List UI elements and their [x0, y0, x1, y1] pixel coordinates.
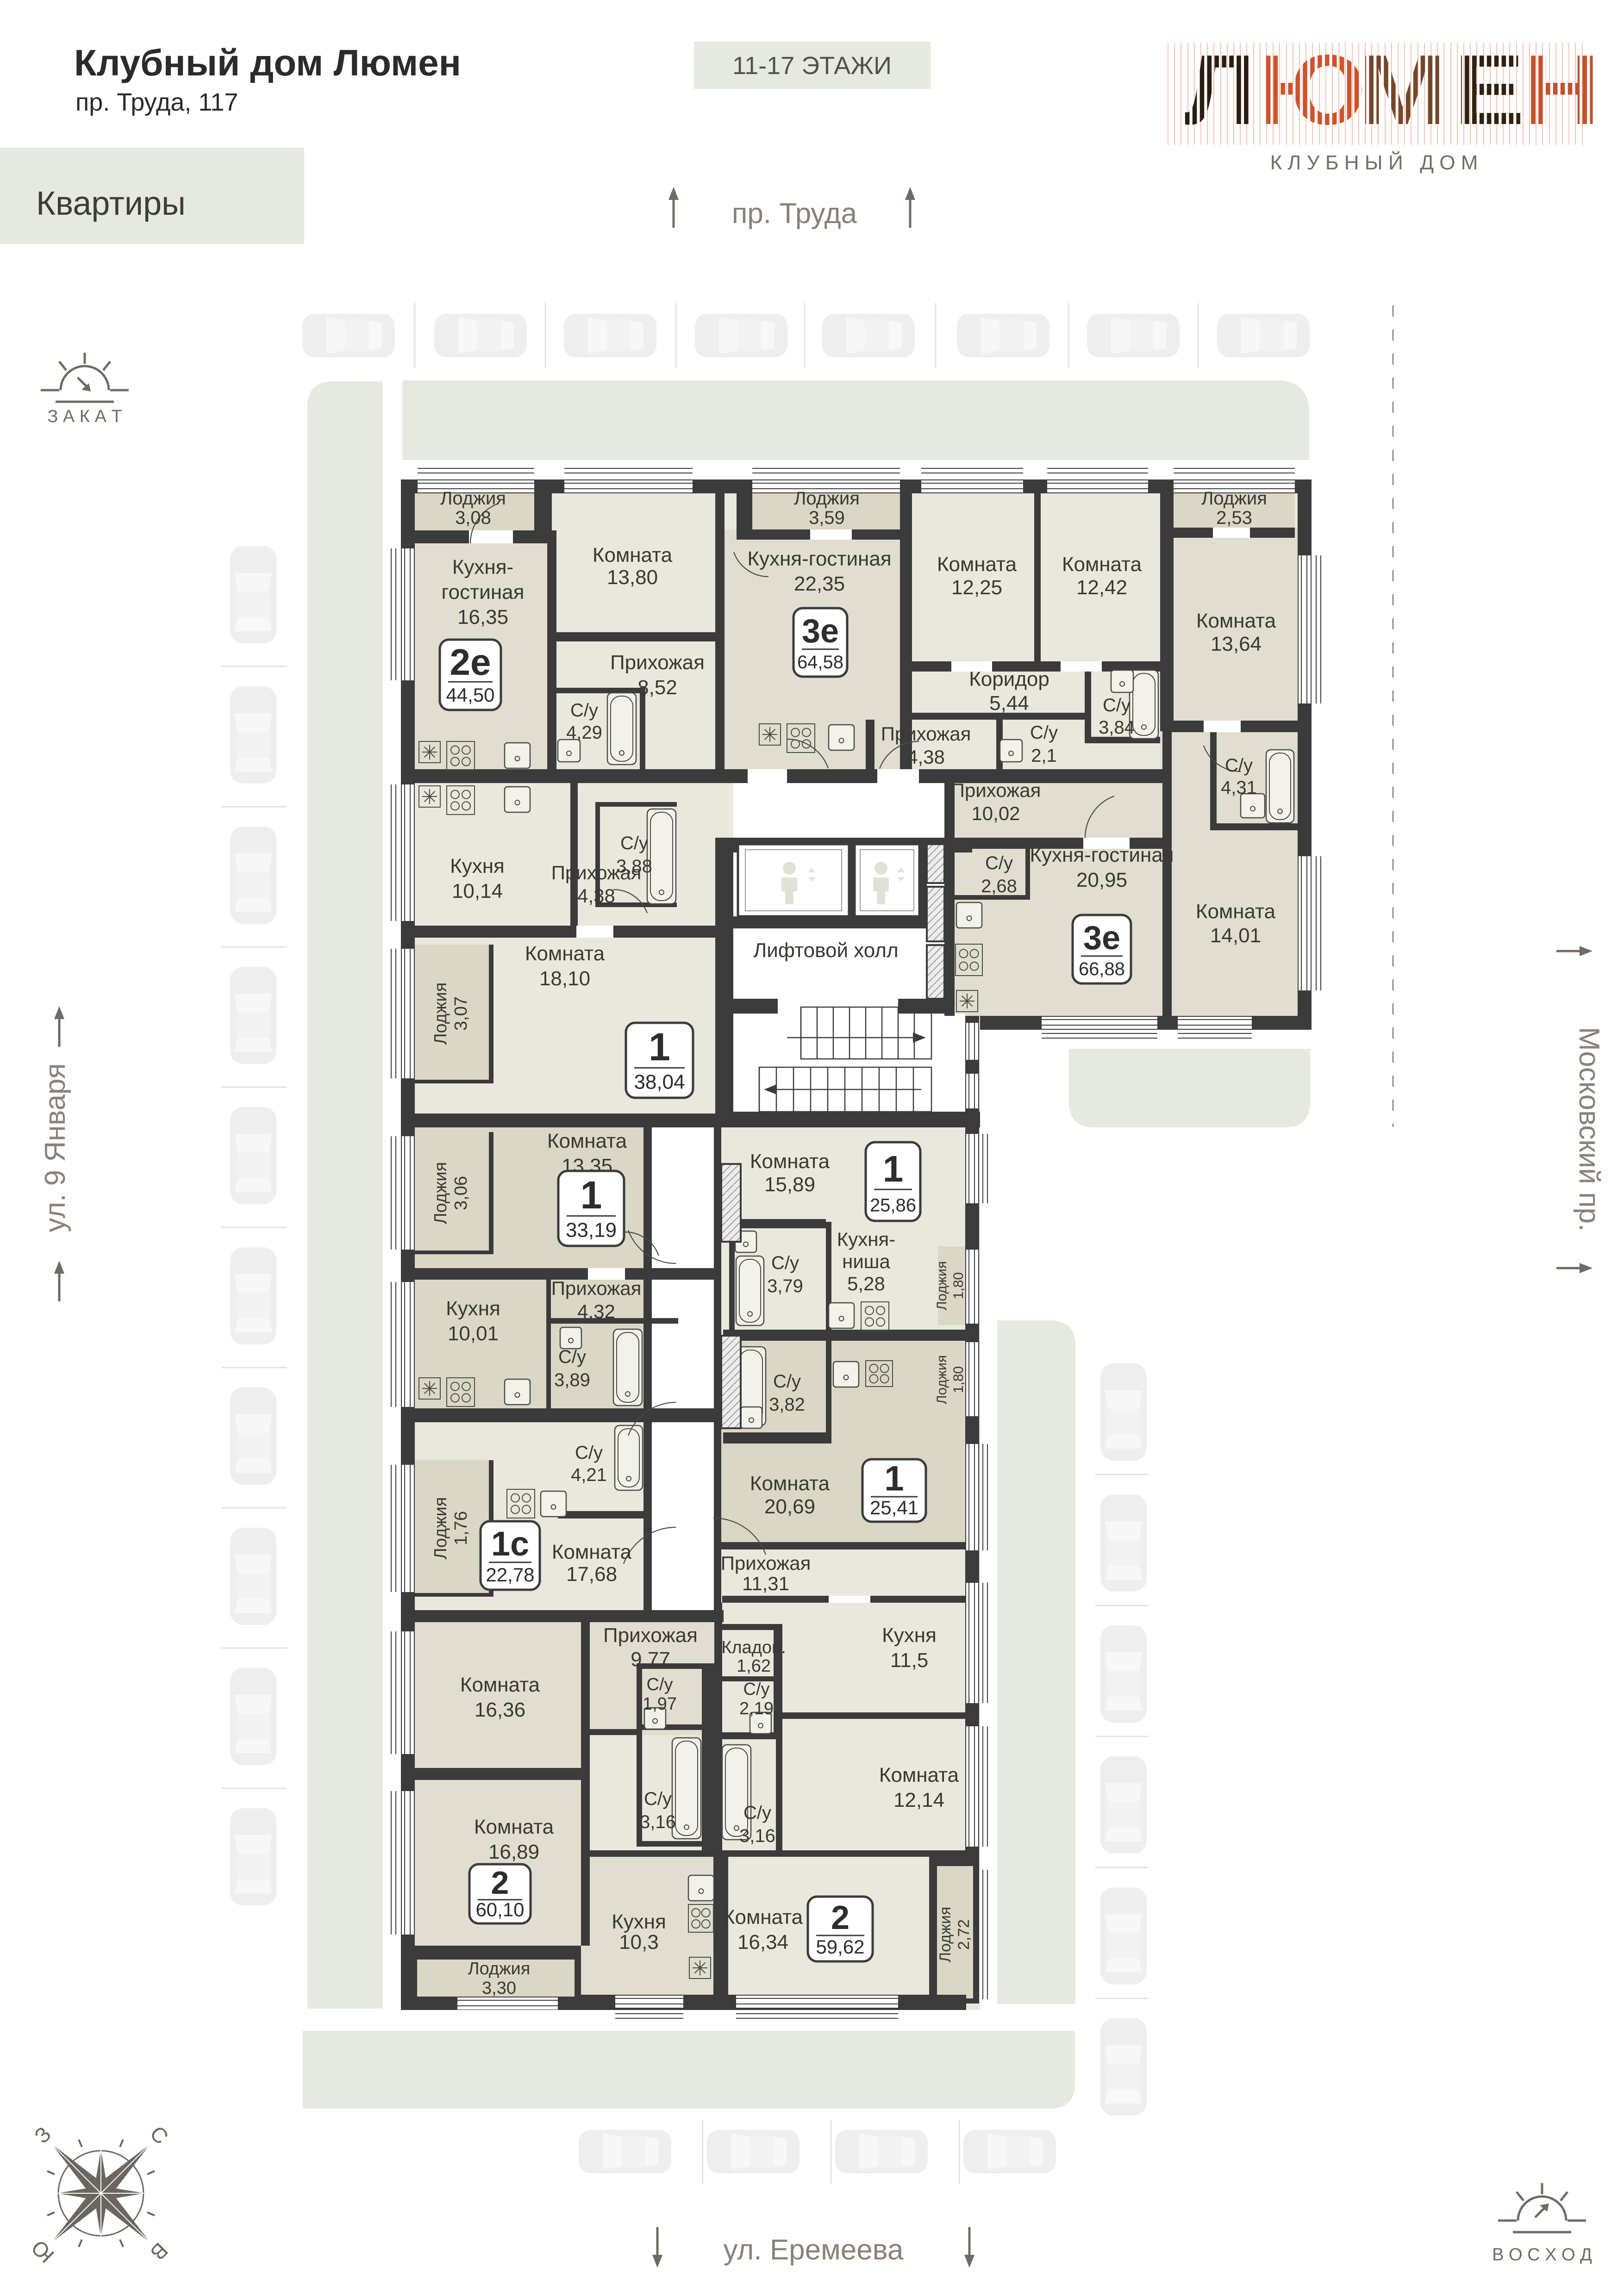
svg-text:33,19: 33,19: [566, 1219, 617, 1242]
svg-text:1: 1: [581, 1173, 602, 1217]
svg-text:8,52: 8,52: [637, 676, 677, 699]
svg-text:11,31: 11,31: [742, 1573, 789, 1594]
svg-text:1: 1: [884, 1459, 904, 1499]
svg-text:В О С Х О Д: В О С Х О Д: [1492, 2245, 1592, 2265]
svg-text:12,42: 12,42: [1076, 576, 1127, 599]
svg-text:Коридор: Коридор: [969, 668, 1049, 691]
svg-text:4,32: 4,32: [577, 1300, 615, 1322]
svg-text:Комната: Комната: [723, 1906, 803, 1929]
svg-text:3,79: 3,79: [767, 1276, 803, 1296]
svg-text:Комната: Комната: [750, 1150, 830, 1173]
svg-text:Комната: Комната: [879, 1764, 959, 1786]
svg-text:2,19: 2,19: [739, 1699, 774, 1718]
svg-text:12,14: 12,14: [893, 1789, 944, 1811]
svg-text:Лоджия: Лоджия: [431, 1162, 450, 1225]
svg-text:С/у: С/у: [1103, 695, 1131, 716]
svg-text:Л: Л: [1184, 34, 1258, 145]
svg-text:18,10: 18,10: [539, 967, 590, 990]
svg-text:Кухня: Кухня: [450, 855, 505, 877]
svg-text:Лоджия: Лоджия: [468, 1959, 531, 1979]
svg-text:1,62: 1,62: [737, 1656, 771, 1676]
svg-text:16,35: 16,35: [457, 606, 508, 628]
svg-text:2е: 2е: [450, 641, 491, 683]
svg-text:3,08: 3,08: [455, 508, 491, 528]
svg-text:С/у: С/у: [620, 833, 648, 853]
svg-text:1,80: 1,80: [951, 1272, 966, 1299]
svg-text:15,89: 15,89: [764, 1173, 815, 1196]
svg-text:17,68: 17,68: [566, 1563, 617, 1586]
svg-text:С/у: С/у: [575, 1443, 603, 1463]
svg-text:2,53: 2,53: [1216, 508, 1252, 528]
svg-text:С/у: С/у: [771, 1253, 799, 1273]
svg-text:5,28: 5,28: [847, 1273, 885, 1294]
svg-text:Комната: Комната: [1062, 553, 1142, 576]
svg-text:С/у: С/у: [647, 1675, 673, 1694]
svg-text:Кухня: Кухня: [446, 1297, 500, 1320]
svg-text:22,78: 22,78: [486, 1564, 534, 1586]
svg-text:Прихожая: Прихожая: [721, 1552, 811, 1574]
svg-text:ул. Еремеева: ул. Еремеева: [724, 2234, 904, 2266]
svg-text:3,16: 3,16: [640, 1812, 676, 1832]
svg-text:Кладов.: Кладов.: [721, 1638, 786, 1657]
svg-text:66,88: 66,88: [1079, 959, 1125, 979]
svg-text:Кухня-: Кухня-: [837, 1228, 895, 1250]
svg-text:1,76: 1,76: [451, 1511, 471, 1545]
svg-text:10,14: 10,14: [452, 880, 503, 902]
svg-text:Комната: Комната: [474, 1816, 554, 1838]
svg-text:1: 1: [649, 1025, 670, 1069]
svg-text:2,1: 2,1: [1031, 746, 1057, 766]
svg-text:Лоджия: Лоджия: [431, 983, 450, 1045]
svg-text:3,06: 3,06: [451, 1176, 471, 1210]
svg-text:Кухня: Кухня: [612, 1910, 666, 1933]
svg-text:С/у: С/у: [570, 700, 598, 721]
svg-text:4,38: 4,38: [907, 746, 945, 768]
svg-text:З А К А Т: З А К А Т: [47, 407, 122, 426]
svg-text:4,29: 4,29: [566, 722, 602, 743]
svg-text:16,89: 16,89: [488, 1841, 539, 1863]
svg-text:2: 2: [491, 1865, 509, 1901]
svg-text:М: М: [1358, 34, 1446, 145]
svg-text:Комната: Комната: [460, 1674, 540, 1696]
svg-text:16,34: 16,34: [737, 1931, 788, 1954]
svg-text:Кухня-: Кухня-: [452, 556, 513, 579]
svg-text:Прихожая: Прихожая: [881, 723, 971, 745]
svg-text:9,77: 9,77: [631, 1648, 670, 1671]
svg-text:10,3: 10,3: [619, 1931, 659, 1954]
svg-text:3е: 3е: [1083, 920, 1120, 957]
svg-text:20,69: 20,69: [764, 1495, 815, 1518]
svg-text:2,68: 2,68: [981, 876, 1017, 896]
svg-text:Прихожая: Прихожая: [603, 1624, 698, 1647]
svg-text:С/у: С/у: [558, 1347, 586, 1367]
svg-text:С/у: С/у: [985, 853, 1013, 873]
svg-text:Комната: Комната: [547, 1130, 627, 1152]
svg-text:11-17 ЭТАЖИ: 11-17 ЭТАЖИ: [732, 52, 892, 80]
svg-text:Комната: Комната: [1196, 900, 1276, 923]
svg-text:10,02: 10,02: [971, 803, 1020, 824]
svg-text:3,30: 3,30: [482, 1979, 516, 1998]
svg-text:Комната: Комната: [1196, 610, 1276, 632]
svg-text:Комната: Комната: [593, 544, 673, 566]
svg-text:64,58: 64,58: [797, 652, 843, 672]
svg-text:10,01: 10,01: [448, 1322, 499, 1345]
svg-text:4,38: 4,38: [577, 885, 615, 907]
svg-text:4,31: 4,31: [1221, 778, 1257, 798]
svg-text:25,41: 25,41: [870, 1497, 918, 1518]
svg-text:гостиная: гостиная: [442, 581, 525, 604]
svg-text:59,62: 59,62: [816, 1936, 864, 1958]
svg-text:44,50: 44,50: [446, 684, 494, 706]
svg-text:ниша: ниша: [842, 1251, 890, 1272]
svg-text:12,25: 12,25: [951, 576, 1002, 599]
svg-text:Кухня: Кухня: [882, 1624, 937, 1647]
svg-text:14,01: 14,01: [1210, 924, 1261, 947]
svg-text:Лоджия: Лоджия: [794, 488, 860, 509]
svg-text:3,16: 3,16: [739, 1826, 775, 1846]
svg-text:5,44: 5,44: [989, 692, 1029, 715]
svg-text:Ю: Ю: [1258, 34, 1367, 145]
svg-text:1,97: 1,97: [643, 1694, 677, 1714]
svg-text:Лоджия: Лоджия: [431, 1497, 450, 1560]
svg-text:Лоджия: Лоджия: [440, 488, 506, 509]
svg-text:С/у: С/у: [743, 1803, 771, 1823]
svg-text:1: 1: [883, 1148, 904, 1189]
svg-text:пр. Труда: пр. Труда: [732, 198, 857, 230]
svg-text:2,72: 2,72: [955, 1919, 973, 1950]
svg-text:К Л У Б Н Ы Й Д О М: К Л У Б Н Ы Й Д О М: [1270, 150, 1478, 174]
svg-text:Лоджия: Лоджия: [937, 1907, 954, 1962]
svg-text:20,95: 20,95: [1076, 869, 1127, 891]
svg-text:3,07: 3,07: [451, 996, 471, 1031]
svg-text:пр. Труда, 117: пр. Труда, 117: [75, 88, 238, 116]
svg-text:1,80: 1,80: [951, 1366, 966, 1393]
svg-text:С/у: С/у: [1225, 755, 1253, 776]
svg-text:Н: Н: [1524, 34, 1600, 145]
svg-text:4,21: 4,21: [571, 1465, 607, 1485]
svg-text:Лоджия: Лоджия: [934, 1355, 949, 1404]
svg-text:13,64: 13,64: [1211, 633, 1262, 655]
svg-text:Комната: Комната: [525, 942, 605, 965]
svg-text:38,04: 38,04: [634, 1071, 685, 1094]
svg-text:С/у: С/у: [644, 1789, 672, 1809]
svg-text:3,88: 3,88: [616, 856, 652, 877]
svg-text:С/у: С/у: [743, 1680, 770, 1699]
svg-text:2: 2: [831, 1899, 849, 1936]
svg-text:Е: Е: [1454, 34, 1524, 145]
svg-text:22,35: 22,35: [794, 572, 845, 595]
svg-text:Прихожая: Прихожая: [551, 1277, 642, 1299]
svg-text:Кухня-гостиная: Кухня-гостиная: [747, 548, 891, 570]
svg-text:Лоджия: Лоджия: [1201, 488, 1267, 509]
svg-text:С/у: С/у: [1030, 722, 1058, 743]
svg-text:Московский пр.: Московский пр.: [1573, 1027, 1605, 1232]
svg-text:Квартиры: Квартиры: [36, 185, 186, 222]
svg-text:С/у: С/у: [773, 1371, 801, 1392]
svg-text:Прихожая: Прихожая: [951, 779, 1041, 801]
svg-text:ул. 9 Января: ул. 9 Января: [39, 1063, 71, 1232]
svg-text:1с: 1с: [491, 1524, 529, 1563]
svg-text:Прихожая: Прихожая: [610, 651, 705, 674]
svg-text:3,84: 3,84: [1099, 717, 1135, 738]
svg-text:3,59: 3,59: [809, 508, 845, 528]
svg-text:Комната: Комната: [937, 553, 1017, 576]
svg-text:16,36: 16,36: [475, 1699, 525, 1721]
svg-text:Комната: Комната: [552, 1541, 632, 1563]
svg-text:Комната: Комната: [750, 1472, 830, 1495]
svg-text:Лифтовой холл: Лифтовой холл: [753, 939, 898, 962]
svg-text:60,10: 60,10: [475, 1899, 524, 1921]
svg-text:25,86: 25,86: [870, 1195, 916, 1216]
svg-text:13,80: 13,80: [607, 566, 658, 589]
svg-text:3е: 3е: [802, 613, 839, 650]
svg-text:3,89: 3,89: [554, 1370, 590, 1390]
svg-text:Лоджия: Лоджия: [934, 1261, 949, 1310]
svg-text:Клубный дом Люмен: Клубный дом Люмен: [74, 42, 461, 83]
svg-text:11,5: 11,5: [890, 1649, 928, 1672]
svg-text:Кухня-гостиная: Кухня-гостиная: [1030, 844, 1174, 866]
svg-text:3,82: 3,82: [769, 1394, 805, 1415]
